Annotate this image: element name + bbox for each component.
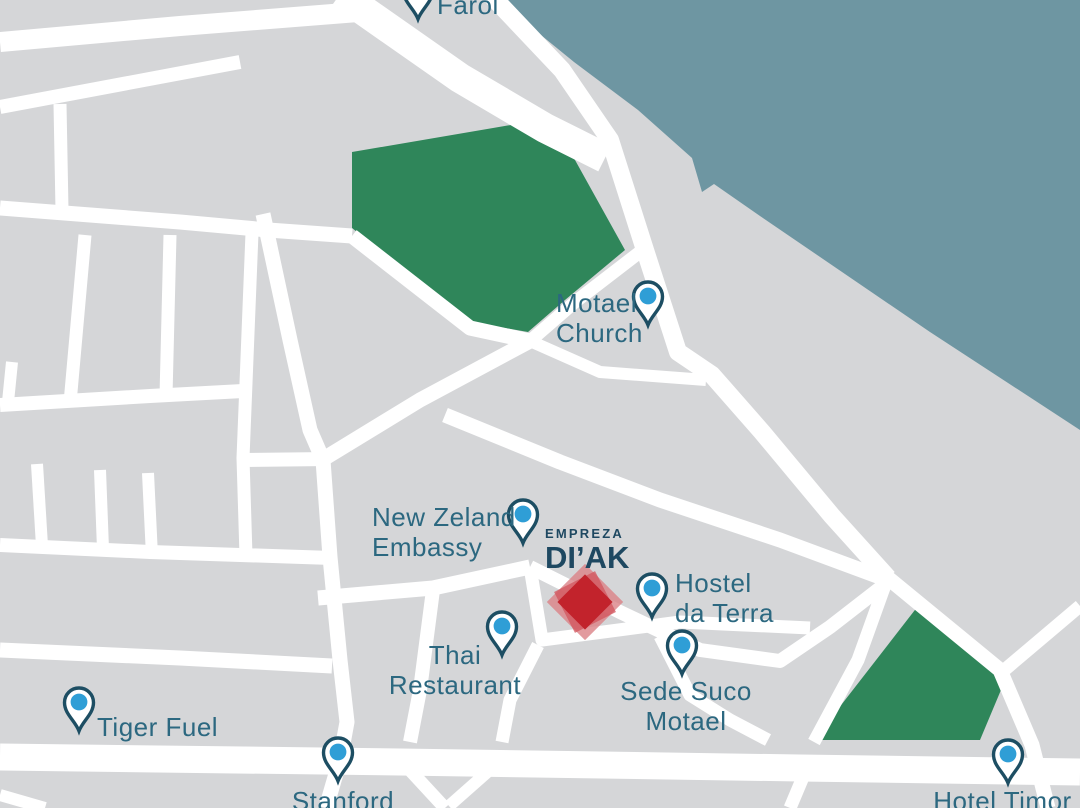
empreza-diak-logo: EMPREZA DI’AK (545, 527, 629, 573)
map-canvas: Farol Motael Church New Zeland Embassy H… (0, 0, 1080, 808)
logo-prefix-text: EMPREZA (545, 527, 629, 540)
logo-name-text: DI’AK (545, 542, 629, 573)
map-graphic (0, 0, 1080, 808)
